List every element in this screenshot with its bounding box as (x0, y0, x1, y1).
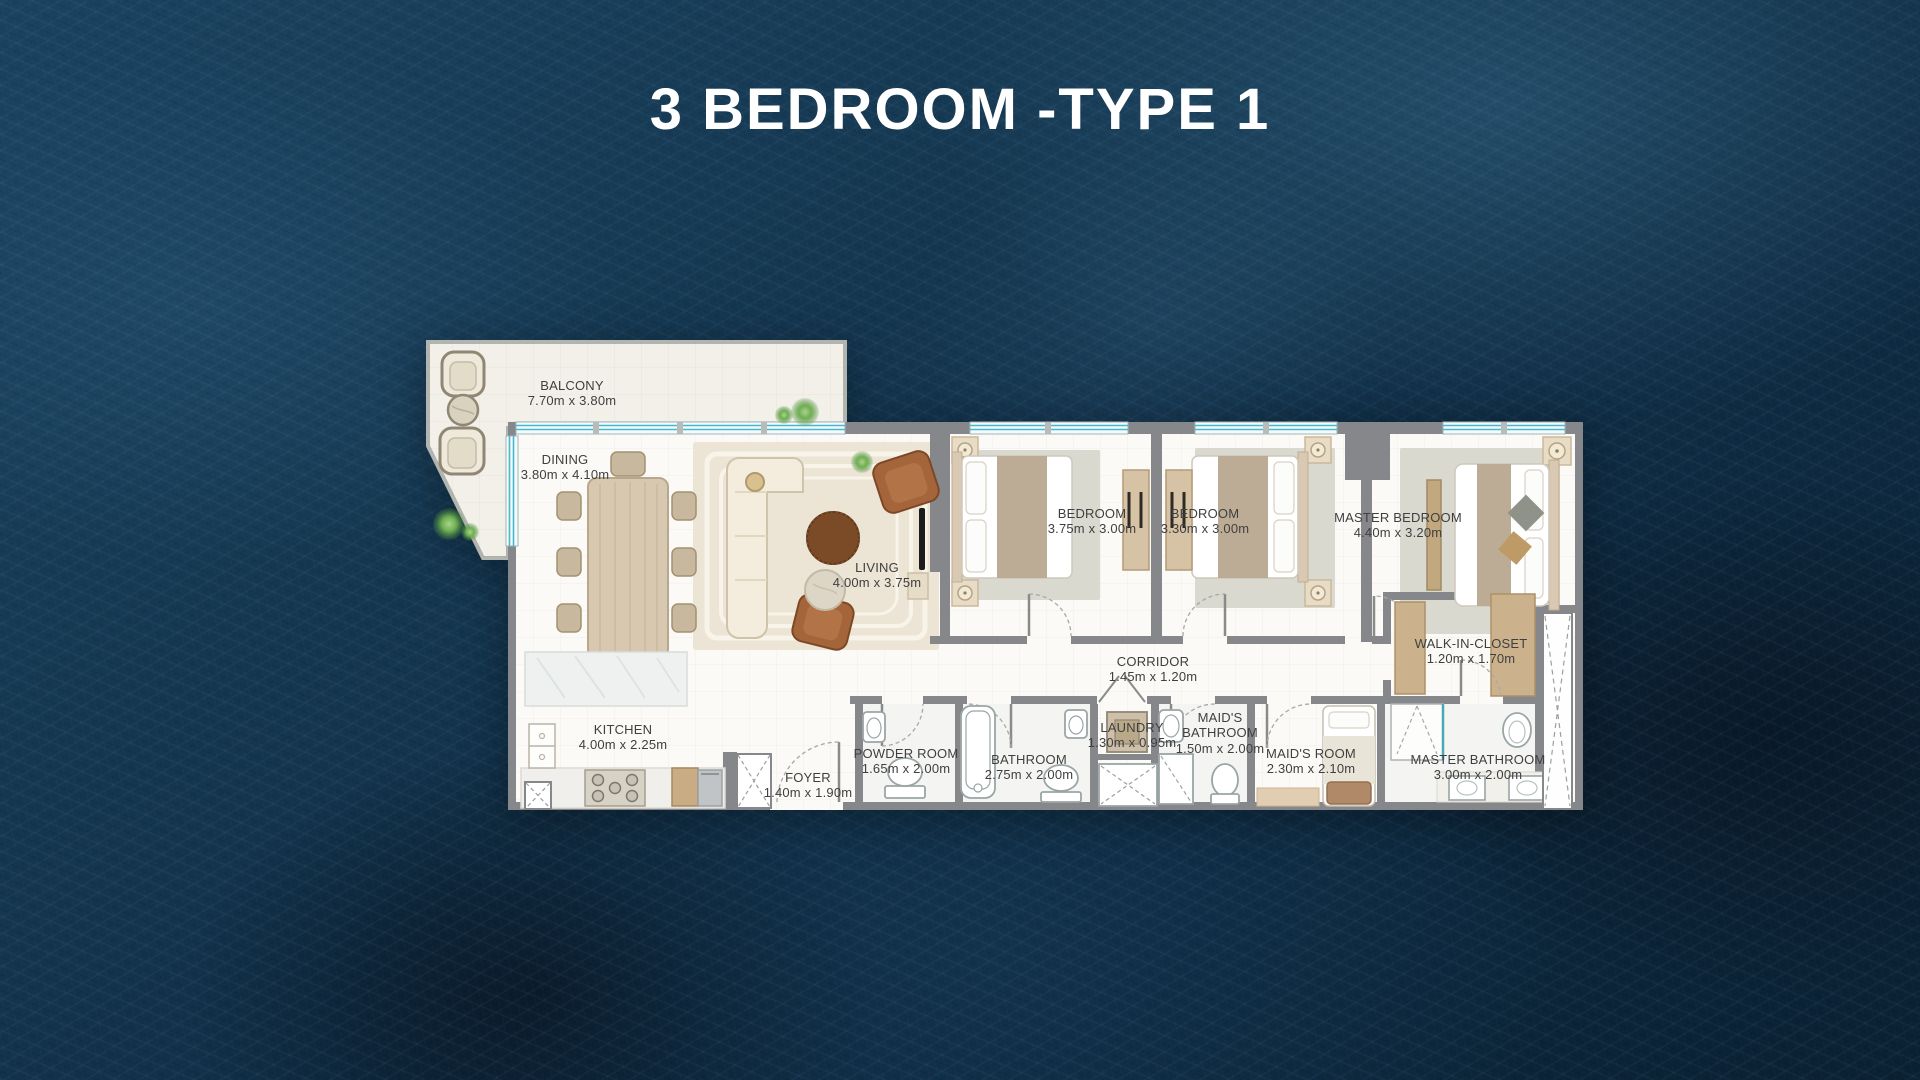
room-label-balcony: BALCONY7.70m x 3.80m (528, 378, 617, 409)
room-label-corridor: CORRIDOR1.45m x 1.20m (1109, 654, 1198, 685)
toilet-icon (1503, 713, 1531, 747)
room-label-bathroom: BATHROOM2.75m x 2.00m (985, 752, 1074, 783)
room-label-dining: DINING3.80m x 4.10m (521, 452, 610, 483)
plant-icon (775, 406, 793, 424)
room-label-kitchen: KITCHEN4.00m x 2.25m (579, 722, 668, 753)
room-label-living: LIVING4.00m x 3.75m (833, 560, 922, 591)
room-label-master-bathroom: MASTER BATHROOM3.00m x 2.00m (1411, 752, 1546, 783)
page-title: 3 BEDROOM -TYPE 1 (650, 76, 1271, 143)
room-label-maids-bathroom: MAID'S BATHROOM1.50m x 2.00m (1176, 710, 1265, 756)
room-label-master-bedroom: MASTER BEDROOM4.40m x 3.20m (1334, 510, 1462, 541)
shaft-box (525, 782, 551, 809)
service-shaft (1543, 613, 1572, 809)
plant-icon (433, 508, 465, 540)
plant-icon (461, 523, 479, 541)
shower-icon (1159, 754, 1193, 804)
room-label-bedroom-1: BEDROOM3.75m x 3.00m (1048, 506, 1137, 537)
room-label-walk-in-closet: WALK-IN-CLOSET1.20m x 1.70m (1415, 636, 1528, 667)
room-label-maids-room: MAID'S ROOM2.30m x 2.10m (1266, 746, 1356, 777)
shower-icon (1099, 764, 1157, 806)
toilet-icon (1041, 792, 1081, 802)
room-label-foyer: FOYER1.40m x 1.90m (764, 770, 853, 801)
plant-icon (851, 451, 873, 473)
toilet-icon (1212, 764, 1238, 796)
room-label-powder-room: POWDER ROOM1.65m x 2.00m (854, 746, 959, 777)
room-label-bedroom-2: BEDROOM3.30m x 3.00m (1161, 506, 1250, 537)
floor-plan: BALCONY7.70m x 3.80m DINING3.80m x 4.10m… (425, 340, 1585, 824)
room-label-laundry: LAUNDRY1.30m x 0.95m (1088, 720, 1177, 751)
plant-icon (791, 398, 819, 426)
toilet-icon (885, 786, 925, 798)
page-background: 3 BEDROOM -TYPE 1 (0, 0, 1920, 1080)
